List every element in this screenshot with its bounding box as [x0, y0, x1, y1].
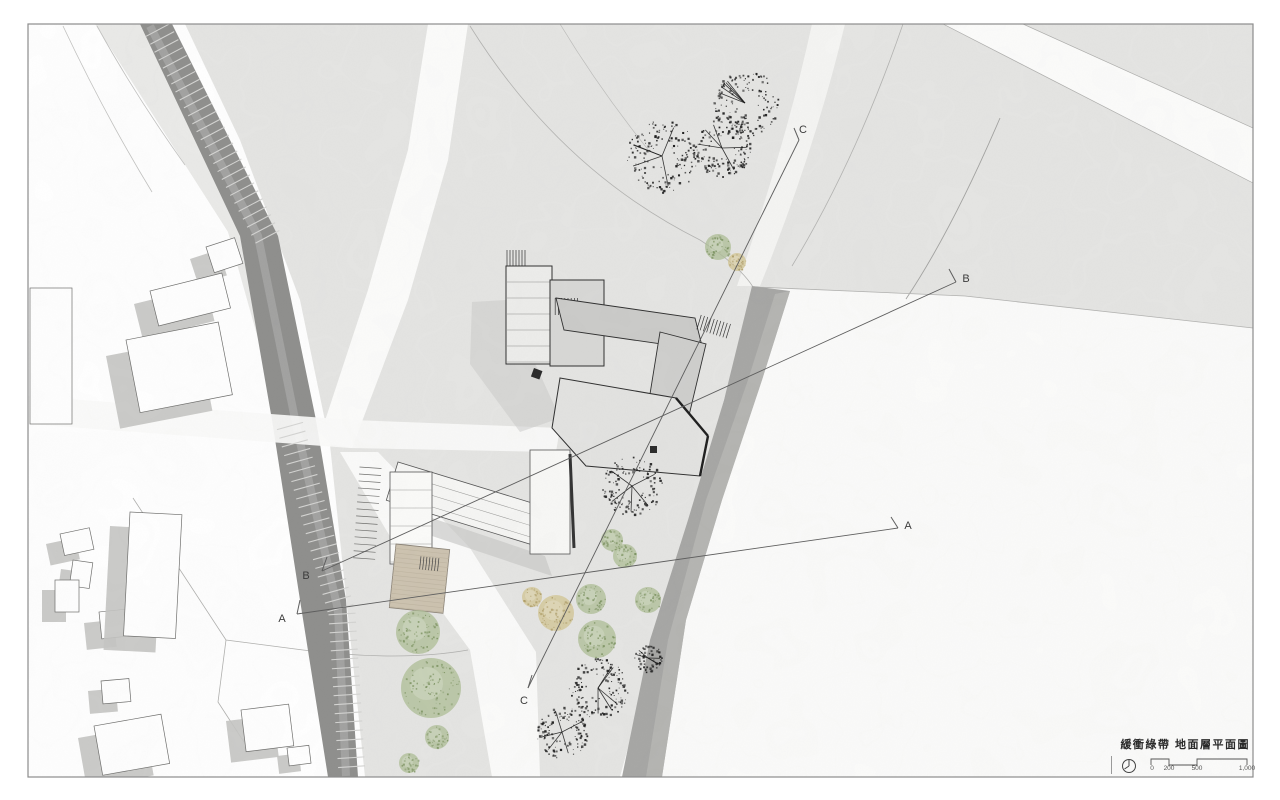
site-plan-canvas: BBAACC	[0, 0, 1280, 800]
concrete-blotch-texture	[28, 24, 1253, 777]
title-block: 緩衝綠帶 地面層平面圖 0 200 500 1,000	[1111, 736, 1250, 774]
svg-text:A: A	[904, 520, 912, 532]
svg-text:C: C	[799, 124, 807, 136]
scale-tick-0: 0	[1150, 765, 1154, 772]
scale-tick-500: 500	[1192, 765, 1203, 772]
svg-text:B: B	[302, 570, 309, 582]
svg-text:B: B	[962, 273, 969, 285]
svg-text:C: C	[520, 695, 528, 707]
drawing-title: 緩衝綠帶 地面層平面圖	[1111, 736, 1250, 752]
scale-bar: 0 200 500 1,000	[1150, 758, 1250, 774]
scale-tick-200: 200	[1164, 765, 1175, 772]
scale-bar-numbers: 0 200 500 1,000	[1150, 765, 1250, 774]
architectural-site-plan-sheet: BBAACC 緩衝綠帶 地面層平面圖 0 200 500 1,000	[0, 0, 1280, 800]
north-indicator-icon	[1120, 756, 1138, 774]
svg-text:A: A	[278, 613, 286, 625]
scale-tick-1000: 1,000	[1239, 765, 1255, 772]
